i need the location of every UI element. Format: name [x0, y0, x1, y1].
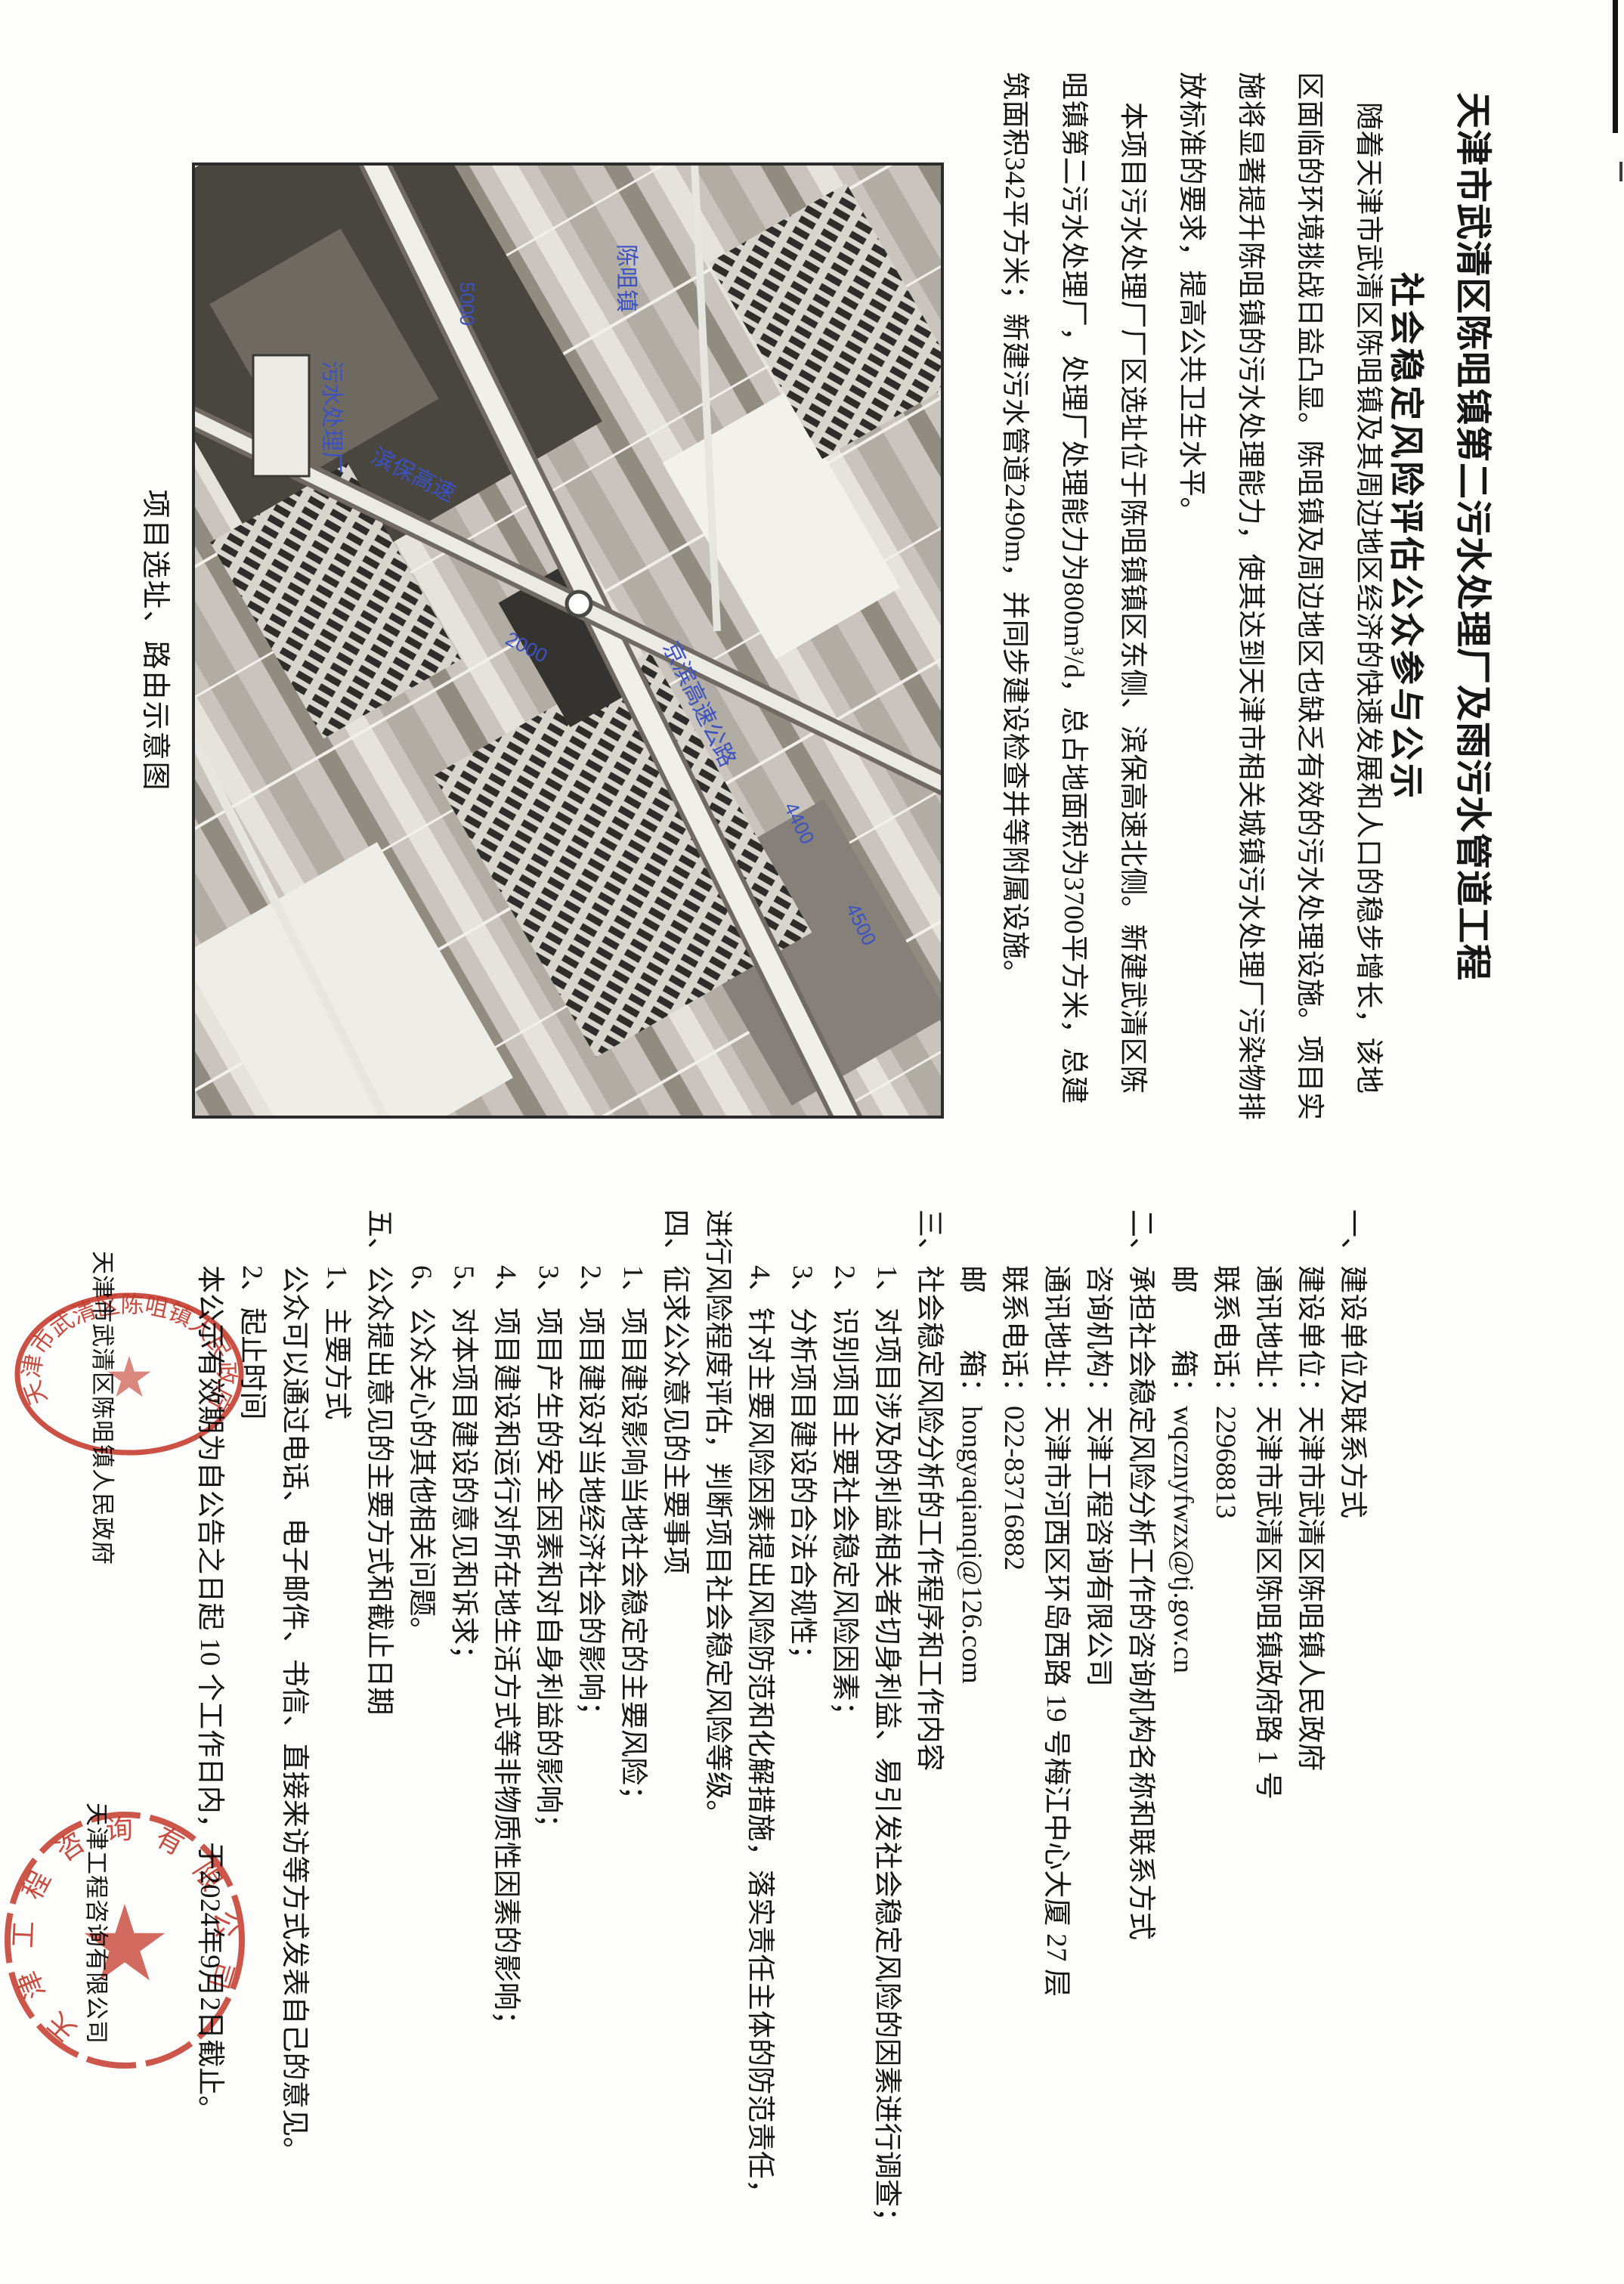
svg-text:天津市武清区陈咀镇人民政府: 天津市武清区陈咀镇人民政府 [18, 1291, 240, 1416]
notice-line: 邮 箱：hongyaqianqi@126.com [950, 1209, 992, 2237]
notice-line: 2、项目建设对当地经济社会的影响； [569, 1209, 611, 2237]
intro-line: 本项目污水处理厂厂区选址位于陈咀镇镇区东侧、滨保高速北侧。新建武清区陈 [1103, 72, 1162, 1130]
notice-line: 1、主要方式 [315, 1209, 357, 2237]
notice-line: 公众可以通过电话、电子邮件、书信、直接来访等方式发表自己的意见。 [273, 1209, 315, 2237]
notice-line: 5、对本项目建设的意见和诉求； [442, 1209, 484, 2237]
star-icon [85, 1904, 165, 1980]
intro-line: 区面临的环境挑战日益凸显。陈咀镇及周边地区也缺乏有效的污水处理设施。项目实 [1279, 72, 1338, 1130]
section-heading: 三、社会稳定风险分析的工作程序和工作内容 [908, 1209, 950, 2237]
section-heading: 四、征求公众意见的主要事项 [654, 1209, 696, 2237]
plant-site-marker [253, 355, 309, 476]
notice-line: 联系电话：022-83716882 [992, 1209, 1035, 2237]
intro-line: 筑面积342平方米；新建污水管道2490m，并同步建设检查井等附属设施。 [985, 72, 1044, 1130]
scanned-notice-page: 天津市武清区陈咀镇第二污水处理厂及雨污水管道工程 社会稳定风险评估公众参与公示 … [0, 0, 1624, 2284]
notice-sections: 一、建设单位及联系方式 建设单位：天津市武清区陈咀镇人民政府 通讯地址：天津市武… [188, 1209, 1373, 2237]
notice-line: 4、项目建设和运行对所在地生活方式等非物质性因素的影响； [484, 1209, 527, 2237]
map-label-plant-site: 污水处理厂 [319, 361, 344, 474]
section-heading: 二、承担社会稳定风险分析工作的咨询机构名称和联系方式 [1119, 1209, 1162, 2237]
intro-line: 随着天津市武清区陈咀镇及其周边地区经济的快速发展和人口的稳步增长，该地 [1338, 72, 1397, 1130]
junction-marker-icon [567, 592, 591, 616]
map-label-dim4: 5000 [456, 282, 478, 326]
section-heading: 一、建设单位及联系方式 [1331, 1209, 1373, 2237]
intro-line: 放标准的要求，提高公共卫生水平。 [1162, 72, 1220, 1130]
notice-line: 1、项目建设影响当地社会稳定的主要风险； [611, 1209, 654, 2237]
notice-line: 建设单位：天津市武清区陈咀镇人民政府 [1288, 1209, 1331, 2237]
notice-line: 2、识别项目主要社会稳定风险因素； [823, 1209, 865, 2237]
notice-line: 咨询机构：天津工程咨询有限公司 [1077, 1209, 1119, 2237]
notice-line: 3、分析项目建设的合法合规性； [781, 1209, 823, 2237]
notice-line: 通讯地址：天津市河西区环岛西路 19 号梅江中心大厦 27 层 [1035, 1209, 1077, 2237]
section-heading: 五、公众提出意见的主要方式和截止日期 [357, 1209, 400, 2237]
government-seal: 天津市武清区陈咀镇人民政府 [5, 1285, 254, 1466]
intro-line: 施将显著提升陈咀镇的污水处理能力，使其达到天津市相关城镇污水处理厂污染物排 [1220, 72, 1279, 1130]
site-map-image: 京滨高速公路 滨保高速 污水处理厂 陈咀镇 4400 4500 2000 500… [192, 162, 944, 1119]
map-label-town: 陈咀镇 [614, 244, 639, 312]
map-caption: 项目选址、路由示意图 [138, 162, 179, 1119]
notice-line: 进行风险程度评估，判断项目社会稳定风险等级。 [696, 1209, 738, 2237]
notice-line: 1、对项目涉及的利益相关者切身利益、易引发社会稳定风险的因素进行调查； [865, 1209, 908, 2237]
notice-line: 联系电话：22968813 [1204, 1209, 1246, 2237]
scan-artifact-mark [1619, 162, 1622, 181]
notice-line: 3、项目产生的安全因素和对自身利益的影响； [527, 1209, 569, 2237]
notice-line: 4、针对主要风险因素提出风险防范和化解措施，落实责任主体的防范责任， [738, 1209, 781, 2237]
intro-line: 咀镇第二污水处理厂，处理厂处理能力为800m³/d，总占地面积为3700平方米，… [1044, 72, 1103, 1130]
document-title-line1: 天津市武清区陈咀镇第二污水处理厂及雨污水管道工程 [1450, 30, 1503, 1043]
consultant-seal: 天津工程咨询有限公司 [0, 1803, 261, 2078]
notice-line: 通讯地址：天津市武清区陈咀镇政府路 1 号 [1246, 1209, 1288, 2237]
notice-line: 邮 箱：wqcznyfwzx@tj.gov.cn [1162, 1209, 1204, 2237]
notice-line: 6、公众关心的其他相关问题。 [400, 1209, 442, 2237]
scan-artifact-line [1613, 0, 1618, 133]
intro-paragraphs: 随着天津市武清区陈咀镇及其周边地区经济的快速发展和人口的稳步增长，该地 区面临的… [985, 72, 1397, 1130]
star-icon [107, 1356, 150, 1397]
government-seal-text: 天津市武清区陈咀镇人民政府 [18, 1291, 240, 1416]
